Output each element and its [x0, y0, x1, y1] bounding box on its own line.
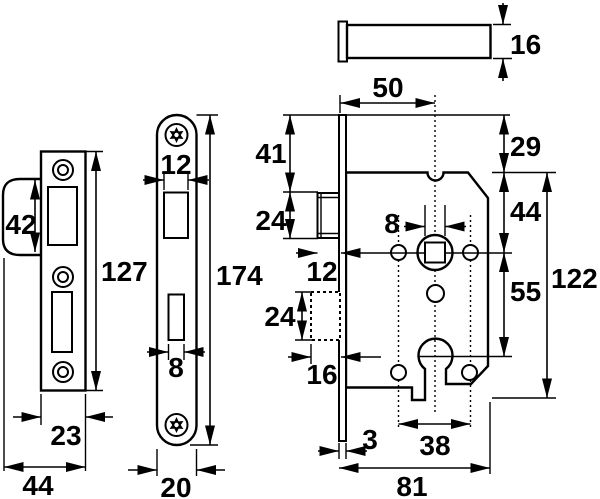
- fixing-hole: [391, 365, 406, 380]
- drawing-canvas: 16 42 127 23 44: [0, 0, 600, 499]
- latch-opening: [164, 193, 188, 239]
- dim-label-face-height: 174: [216, 260, 263, 291]
- edge-bar-body: [347, 25, 491, 58]
- dim-label-spindle-to-keyhole: 55: [510, 276, 541, 307]
- fixing-hole: [462, 365, 477, 380]
- dim-label-case-height: 122: [551, 263, 598, 294]
- case-faceplate: [339, 115, 346, 441]
- dim-label-bolt-throw: 16: [306, 359, 337, 390]
- dim-label-lip-height: 42: [5, 209, 36, 240]
- edge-bar-view: 16: [339, 3, 542, 81]
- strike-plate-view: 42 127 23 44: [3, 152, 148, 499]
- dim-label-strike-width: 23: [50, 420, 81, 451]
- bolt-cutout: [52, 292, 72, 352]
- dim-label-face-latch-width: 12: [160, 149, 191, 180]
- bolt-opening: [169, 295, 185, 341]
- lock-case-view: 50 41 24 12 24 16 8: [255, 72, 597, 499]
- lock-technical-drawing: 16 42 127 23 44: [0, 0, 600, 499]
- faceplate-view: 12 174 8 20: [128, 115, 263, 499]
- dim-label-spindle-square: 8: [384, 208, 400, 239]
- center-hole: [427, 285, 444, 302]
- dim-label-edge-thickness: 16: [510, 29, 541, 60]
- edge-bar-cap: [339, 22, 348, 62]
- screw-hole: [53, 160, 73, 180]
- dim-label-top-offset: 29: [510, 131, 541, 162]
- latch-cutout: [48, 187, 77, 245]
- dim-label-face-width: 20: [160, 472, 191, 499]
- dim-label-latch-top-offset: 41: [255, 138, 286, 169]
- spindle-square-hole: [425, 243, 445, 263]
- dim-label-faceplate-thickness: 3: [362, 424, 378, 455]
- dim-label-strike-total-width: 44: [22, 470, 54, 499]
- dim-label-spindle-offset: 44: [510, 196, 542, 227]
- deadbolt-hidden: [311, 292, 340, 340]
- dim-label-backset: 50: [372, 72, 403, 103]
- latch-bolt: [318, 193, 340, 238]
- torx-screw: [166, 414, 188, 436]
- torx-screw: [166, 124, 188, 146]
- dim-label-latch-throw: 12: [306, 256, 337, 287]
- dim-label-hole-spacing: 38: [419, 430, 450, 461]
- screw-hole: [53, 362, 73, 382]
- screw-hole: [53, 267, 73, 287]
- dim-label-face-bolt-width: 8: [168, 352, 184, 383]
- dim-label-case-depth: 81: [396, 471, 427, 499]
- dim-label-latch-height: 24: [255, 205, 287, 236]
- dim-label-bolt-height: 24: [264, 301, 296, 332]
- dim-label-strike-height: 127: [101, 256, 148, 287]
